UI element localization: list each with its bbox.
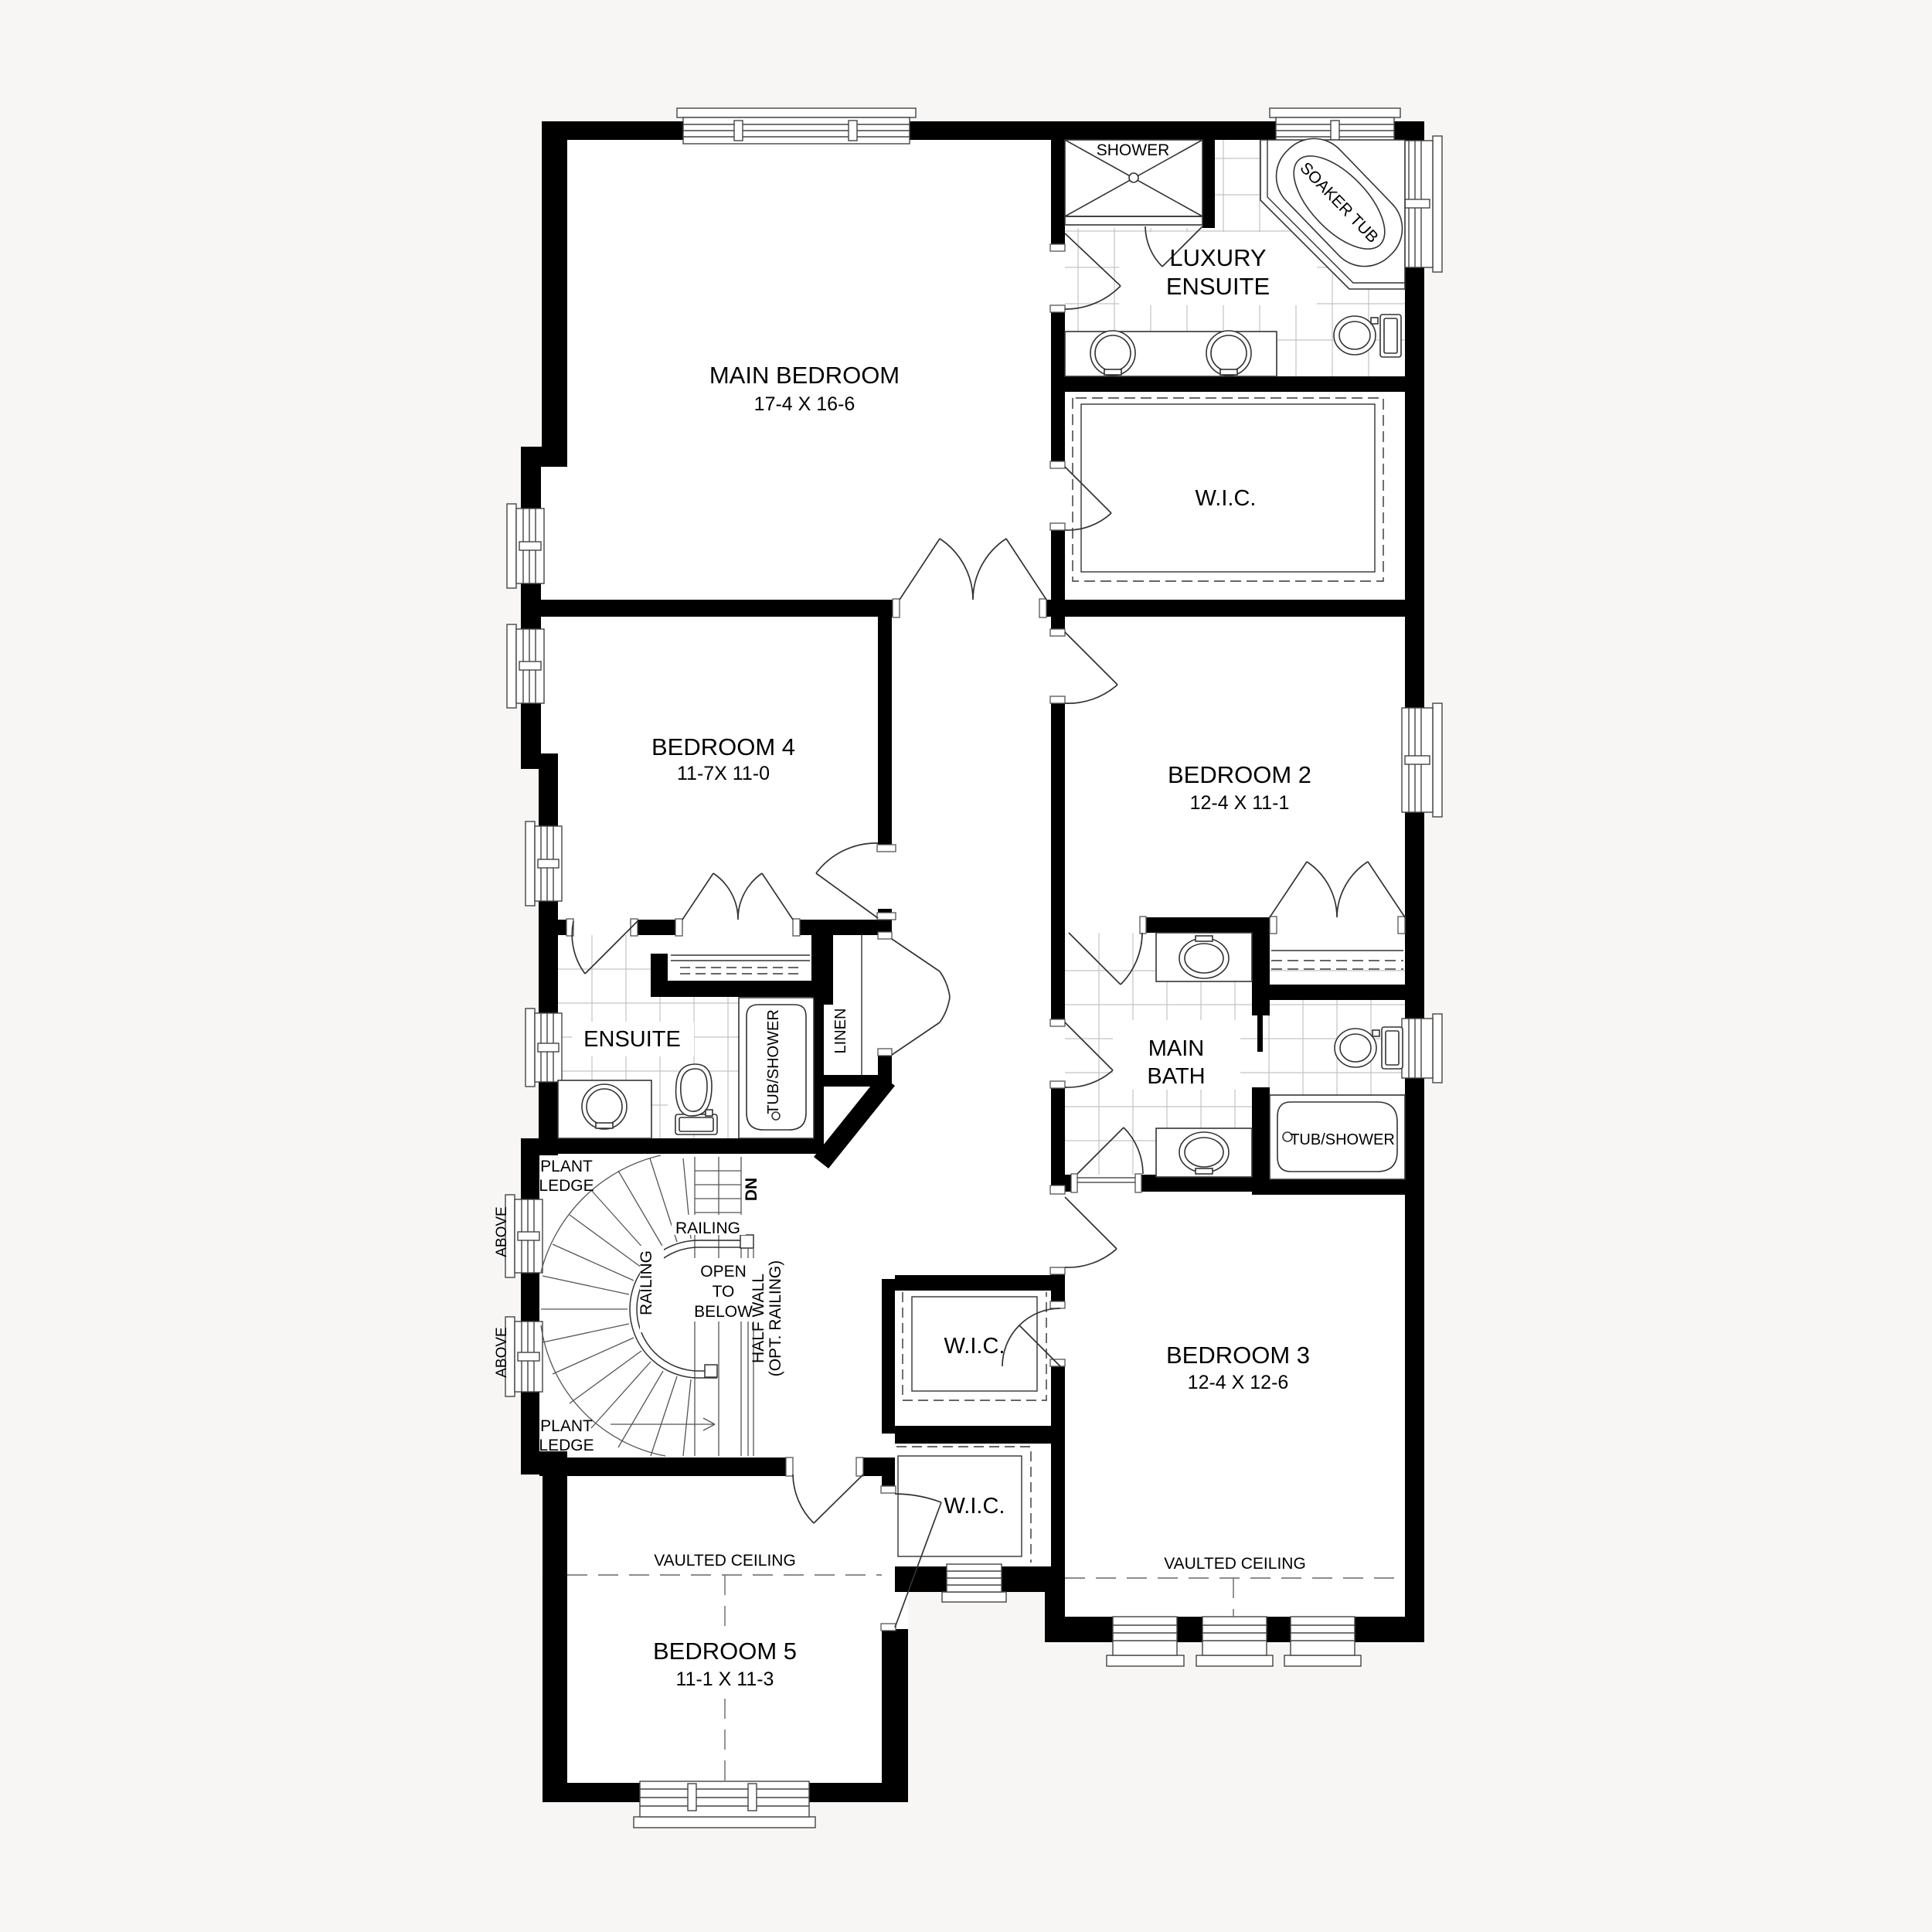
svg-text:TUB/SHOWER: TUB/SHOWER xyxy=(765,1009,782,1114)
svg-text:ABOVE: ABOVE xyxy=(494,1206,510,1257)
svg-text:LINEN: LINEN xyxy=(832,1009,849,1054)
svg-text:ENSUITE: ENSUITE xyxy=(1166,273,1270,300)
svg-text:ABOVE: ABOVE xyxy=(494,1327,510,1377)
svg-text:RAILING: RAILING xyxy=(638,1250,655,1315)
svg-text:HALF WALL: HALF WALL xyxy=(750,1274,767,1363)
svg-text:W.I.C.: W.I.C. xyxy=(944,1334,1005,1359)
svg-text:RAILING: RAILING xyxy=(675,1219,740,1237)
svg-text:11-7X 11-0: 11-7X 11-0 xyxy=(677,763,770,784)
svg-text:VAULTED CEILING: VAULTED CEILING xyxy=(1164,1555,1306,1573)
svg-text:LUXURY: LUXURY xyxy=(1169,244,1266,271)
svg-text:TUB/SHOWER: TUB/SHOWER xyxy=(1290,1131,1395,1148)
svg-text:BELOW: BELOW xyxy=(694,1303,753,1321)
svg-text:TO: TO xyxy=(713,1283,735,1301)
svg-text:BATH: BATH xyxy=(1147,1064,1205,1089)
svg-text:BEDROOM 5: BEDROOM 5 xyxy=(653,1638,797,1665)
svg-text:SHOWER: SHOWER xyxy=(1097,141,1170,159)
svg-text:MAIN: MAIN xyxy=(1148,1036,1205,1061)
svg-text:VAULTED CEILING: VAULTED CEILING xyxy=(654,1552,796,1570)
svg-text:BEDROOM 3: BEDROOM 3 xyxy=(1166,1342,1310,1369)
svg-text:PLANT: PLANT xyxy=(540,1417,593,1435)
svg-text:12-4 X 12-6: 12-4 X 12-6 xyxy=(1188,1372,1289,1393)
svg-text:W.I.C.: W.I.C. xyxy=(944,1494,1005,1519)
svg-text:DN: DN xyxy=(743,1178,760,1201)
svg-text:PLANT: PLANT xyxy=(540,1158,593,1175)
svg-text:17-4 X 16-6: 17-4 X 16-6 xyxy=(754,393,855,415)
svg-text:LEDGE: LEDGE xyxy=(539,1437,594,1454)
svg-text:MAIN BEDROOM: MAIN BEDROOM xyxy=(709,362,900,389)
svg-text:LEDGE: LEDGE xyxy=(539,1177,594,1195)
svg-text:W.I.C.: W.I.C. xyxy=(1196,486,1257,511)
svg-text:11-1 X 11-3: 11-1 X 11-3 xyxy=(676,1668,774,1690)
svg-text:12-4 X 11-1: 12-4 X 11-1 xyxy=(1190,792,1290,814)
svg-text:BEDROOM 2: BEDROOM 2 xyxy=(1168,761,1311,788)
svg-text:ENSUITE: ENSUITE xyxy=(583,1027,681,1052)
svg-text:OPEN: OPEN xyxy=(700,1263,747,1281)
svg-text:BEDROOM 4: BEDROOM 4 xyxy=(651,733,795,760)
svg-text:(OPT. RAILING): (OPT. RAILING) xyxy=(767,1260,784,1377)
